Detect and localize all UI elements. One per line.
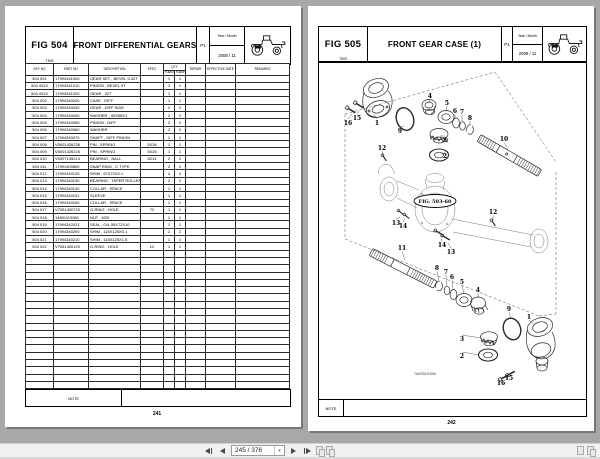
table-row-empty [26, 323, 290, 330]
year-month-cell: Year / Month 2008 / 11 [512, 27, 542, 62]
bearing-part-5 [438, 111, 454, 124]
table-row: 504 010V5007135214BEARING , BALL621422 [26, 155, 290, 162]
callout-leader-line [357, 111, 359, 114]
table-row: 504 00517994340050PINION , DIFF22 [26, 119, 290, 126]
table-row-empty [26, 279, 290, 286]
note-content-empty [344, 400, 586, 416]
col-description: DESCRIPTION [89, 64, 141, 76]
page-number: 242 [318, 420, 585, 426]
table-row-empty [26, 265, 290, 272]
first-page-button[interactable] [203, 445, 214, 456]
callout-number-2: 2 [460, 353, 464, 360]
note-box: NOTE [318, 399, 587, 417]
sheet-code: P1 [200, 43, 206, 48]
callout-number-12: 12 [378, 145, 386, 152]
left-page-header: FIG 504 T503 FRONT DIFFERENTIAL GEARS P1… [25, 26, 291, 65]
table-row: 504 001017994341010PINION , BEVEL 9T11 [26, 82, 290, 89]
table-row: 504 01814891110080NUT , M2011 [26, 214, 290, 221]
bearing-part-5b [456, 294, 472, 307]
last-page-button[interactable] [302, 445, 313, 456]
callout-number-3: 3 [443, 137, 447, 144]
col-repair: REPAIR [186, 64, 206, 76]
table-row: 504 00417994340040WASHER , 40X58X122 [26, 111, 290, 118]
table-row: 504 022V7051400120O-RING , HOLE1211 [26, 243, 290, 250]
year-month-cell: Year / Month 2008 / 11 [209, 27, 244, 64]
page-title-cell: FRONT DIFFERENTIAL GEARS [73, 27, 196, 64]
fig-ref-label: FIG. 503-60 [419, 199, 452, 205]
fig-number: FIG 504 [31, 40, 67, 51]
fig-number: FIG 505 [325, 39, 361, 50]
callout-number-10: 10 [500, 136, 508, 143]
table-row: 504 008V5001426236PIN , SPRING5X3611 [26, 141, 290, 148]
bevel-gear-part-3b [481, 332, 498, 346]
table-row: 504 01617994340160COLLAR , SPACE11 [26, 199, 290, 206]
col-part-no: PART NO [54, 64, 89, 76]
front-axle-housing-assembly [379, 164, 548, 253]
sheet-cell: P1 [501, 27, 512, 62]
table-row-empty [26, 360, 290, 367]
callout-number-12: 12 [489, 209, 497, 216]
callout-leader-line [400, 126, 404, 127]
diagram-footnote: TA0/TA5-E/59A [414, 372, 437, 376]
page-number-field[interactable]: ▾ [231, 445, 285, 456]
table-row-empty [26, 294, 290, 301]
right-page-header: FIG 505 T503 FRONT GEAR CASE (1) P1 Year… [318, 26, 587, 63]
table-row-empty [26, 345, 290, 352]
table-row-empty [26, 381, 290, 388]
callout-number-14: 14 [438, 242, 446, 249]
callout-leader-line [403, 219, 405, 222]
callout-leader-line [462, 335, 481, 338]
table-row-empty [26, 367, 290, 374]
tractor-icon [248, 34, 288, 57]
catalog-page-left: FIG 504 T503 FRONT DIFFERENTIAL GEARS P1… [5, 6, 301, 427]
bolt-part-14b [434, 229, 444, 236]
table-row-empty [26, 338, 290, 345]
table-row-empty [26, 272, 290, 279]
axle-shaft-part-10 [477, 135, 542, 177]
table-row-empty [26, 374, 290, 381]
front-gear-case-drawing: FIG. 503-60 TA0/TA5-E/59A 16151945678321… [319, 62, 586, 400]
callout-number-1: 1 [527, 314, 531, 321]
col-spec: SPEC [141, 64, 164, 76]
o-ring-part-9 [393, 105, 416, 132]
snap-ring-part-8b [436, 281, 443, 291]
table-row: 504 01917994342021SEAL , OIL 55X72X1011 [26, 221, 290, 228]
col-key-no: KEY NO [26, 64, 54, 76]
callout-number-6: 6 [453, 108, 457, 115]
tractor-icon [545, 33, 585, 56]
table-row: 504 01217994340120SHIM , 67X72X0.144 [26, 170, 290, 177]
callout-number-7: 7 [444, 269, 448, 276]
callout-number-15: 15 [353, 115, 361, 122]
screw-part-14 [403, 213, 410, 219]
first-page-icon [205, 448, 210, 454]
exploded-diagram: FIG. 503-60 TA0/TA5-E/59A 16151945678321… [318, 61, 587, 401]
table-row: 504 01117991400800SNAP RING , C TYPE22 [26, 163, 290, 170]
callout-number-7: 7 [460, 109, 464, 116]
catalog-page-right: FIG 505 T503 FRONT GEAR CASE (1) P1 Year… [308, 6, 594, 431]
year-month-value: 2008 / 11 [210, 46, 244, 64]
callout-number-13: 13 [447, 249, 455, 256]
gear-case-housing-bottom [525, 314, 555, 371]
callout-number-15: 15 [505, 375, 513, 382]
callout-number-11: 11 [398, 245, 406, 252]
screw-part-12 [381, 154, 388, 162]
page-title: FRONT GEAR CASE (1) [388, 40, 481, 49]
callout-leader-line [402, 251, 405, 260]
table-row: 504 00217994340020CASE , DIFF11 [26, 97, 290, 104]
ring-part-7 [460, 122, 466, 130]
table-row: 504 00617994340060WASHER22 [26, 126, 290, 133]
o-ring-part-9b [501, 316, 524, 342]
facing-pages-continuous-view-icon[interactable] [326, 446, 333, 455]
callout-number-4: 4 [476, 287, 480, 294]
parts-table: KEY NO PART NO DESCRIPTION SPEC QTY REPA… [25, 63, 290, 389]
callout-number-2: 2 [443, 153, 447, 160]
sheet-code: P1 [504, 42, 510, 47]
bolt-part-16 [345, 106, 356, 115]
seal-part-2b [479, 349, 498, 361]
col-qty-sub2: THENP [175, 70, 186, 75]
snap-ring-part-8 [467, 125, 474, 135]
next-page-icon [291, 448, 296, 454]
viewer-toolbar: ▾ [0, 443, 600, 459]
callout-number-4: 4 [428, 93, 432, 100]
toolbar-right-group [577, 444, 594, 457]
tractor-icon-cell [244, 27, 290, 64]
page-title: FRONT DIFFERENTIAL GEARS [74, 41, 196, 50]
callout-number-5: 5 [445, 100, 449, 107]
collar-part-4 [422, 100, 436, 115]
table-row: 504 01317994340130BEARING , TAPER ROLLER… [26, 177, 290, 184]
table-row-empty [26, 250, 290, 257]
table-row: 504 017V7051400720O-RING , HOLE7211 [26, 206, 290, 213]
table-row-empty [26, 316, 290, 323]
callout-number-8: 8 [435, 265, 439, 272]
collar-part-4b [471, 297, 489, 314]
table-row: 504 02017994340200SHIM , 115X125X0.122 [26, 228, 290, 235]
table-row: 504 001017994341020GEAR , 32T11 [26, 90, 290, 97]
callout-leader-line [348, 114, 352, 119]
page-navigation-group: ▾ [203, 444, 333, 457]
callout-number-6: 6 [450, 274, 454, 281]
note-content-empty [122, 390, 290, 406]
fig-number-cell: FIG 504 T503 [26, 27, 73, 64]
callout-number-16: 16 [344, 120, 352, 127]
callout-number-9: 9 [398, 128, 402, 135]
year-month-label: Year / Month [210, 27, 244, 46]
previous-page-icon [220, 448, 225, 454]
facing-pages-view-icon[interactable] [316, 446, 323, 455]
callout-leader-line [446, 106, 447, 112]
callout-number-5: 5 [460, 279, 464, 286]
page-thumb-icon[interactable] [577, 446, 584, 455]
callout-number-14: 14 [399, 223, 407, 230]
table-row: 504 00117994341000GEAR SET , BEVEL 9-32T… [26, 75, 290, 82]
table-row: 504 01417994340140COLLAR , SPACE11 [26, 184, 290, 191]
page-thumb-double-icon[interactable] [587, 446, 594, 455]
table-row: 504 02117994340210SHIM , 115X125X1.511 [26, 236, 290, 243]
sheet-cell: P1 [196, 27, 209, 64]
previous-page-button[interactable] [217, 445, 228, 456]
note-label: NOTE [319, 400, 344, 416]
table-row: 504 00317994340030GEAR , DIFF SIDE22 [26, 104, 290, 111]
table-row: 504 00717994340070SHAFT , DIFF PINION11 [26, 133, 290, 140]
page-title-cell: FRONT GEAR CASE (1) [367, 27, 501, 62]
callout-number-3: 3 [460, 336, 464, 343]
table-row: 504 01517994340151SLEEVE11 [26, 192, 290, 199]
table-row-empty [26, 330, 290, 337]
parts-table-header: KEY NO PART NO DESCRIPTION SPEC QTY REPA… [26, 64, 290, 76]
ring-part-6 [453, 118, 460, 128]
col-effective-date: EFFECTIVE DATE [206, 64, 236, 76]
note-box: NOTE [25, 389, 291, 407]
year-month-label: Year / Month [513, 27, 542, 45]
col-remarks: REMARKS [236, 64, 290, 76]
callout-number-1: 1 [375, 120, 379, 127]
callout-leader-line [446, 275, 447, 286]
table-row-empty [26, 257, 290, 264]
page-number-input[interactable] [232, 447, 274, 454]
table-row-empty [26, 287, 290, 294]
callout-leader-line [448, 243, 451, 248]
callout-number-9: 9 [507, 306, 511, 313]
note-label: NOTE [26, 390, 122, 406]
callout-leader-line [396, 217, 400, 219]
ring-part-6b [450, 290, 457, 300]
callout-number-8: 8 [468, 115, 472, 122]
ring-part-7b [444, 286, 450, 294]
page-number: 241 [25, 411, 289, 417]
tractor-icon-cell [542, 27, 586, 62]
page-dropdown-arrow-icon[interactable]: ▾ [274, 446, 284, 455]
table-row-empty [26, 352, 290, 359]
callout-leader-line [462, 352, 479, 355]
table-row-empty [26, 309, 290, 316]
callout-leader-line [374, 114, 377, 119]
fig-number-cell: FIG 505 T503 [319, 27, 367, 62]
table-row-empty [26, 301, 290, 308]
year-month-value: 2008 / 11 [513, 45, 542, 62]
next-page-button[interactable] [288, 445, 299, 456]
table-row: 504 009V5001426226PIN , SPRING5X2611 [26, 148, 290, 155]
col-qty-sub1: THENO [164, 70, 175, 75]
gear-case-housing-top [361, 75, 392, 120]
last-page-icon [306, 448, 311, 454]
callout-leader-line [441, 238, 442, 241]
callout-leader-line [462, 285, 464, 294]
